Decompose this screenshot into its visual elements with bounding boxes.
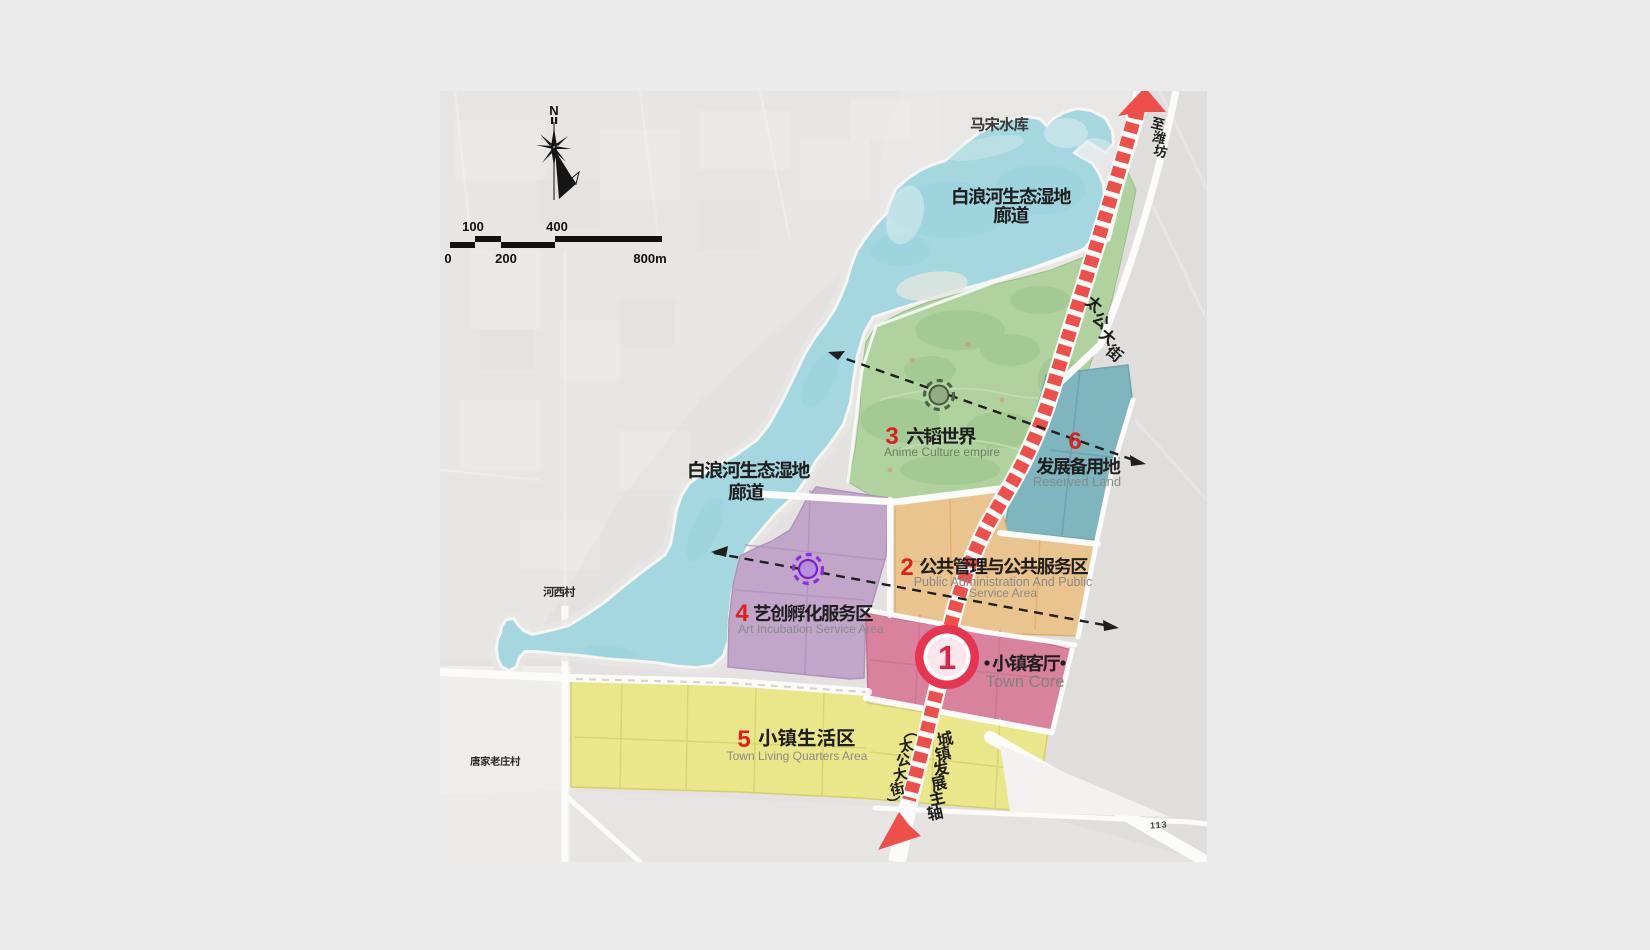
svg-text:Anime Culture empire: Anime Culture empire <box>884 445 1000 459</box>
svg-text:100: 100 <box>462 219 484 234</box>
svg-text:113: 113 <box>1150 819 1168 830</box>
svg-text:1: 1 <box>938 639 956 676</box>
svg-text:Art Incubation Service Area: Art Incubation Service Area <box>738 622 884 636</box>
svg-text:Town Core: Town Core <box>986 673 1065 691</box>
svg-text:Town Living Quarters Area: Town Living Quarters Area <box>727 749 868 763</box>
svg-text:800m: 800m <box>633 251 666 266</box>
svg-text:400: 400 <box>546 219 568 234</box>
svg-text:0: 0 <box>444 251 451 266</box>
svg-text:6: 6 <box>1068 428 1081 455</box>
svg-text:Reserved Land: Reserved Land <box>1033 474 1121 489</box>
svg-text:200: 200 <box>495 251 517 266</box>
svg-text:Service Area: Service Area <box>969 586 1037 600</box>
svg-text:N: N <box>549 103 558 118</box>
svg-text:2: 2 <box>900 554 913 581</box>
